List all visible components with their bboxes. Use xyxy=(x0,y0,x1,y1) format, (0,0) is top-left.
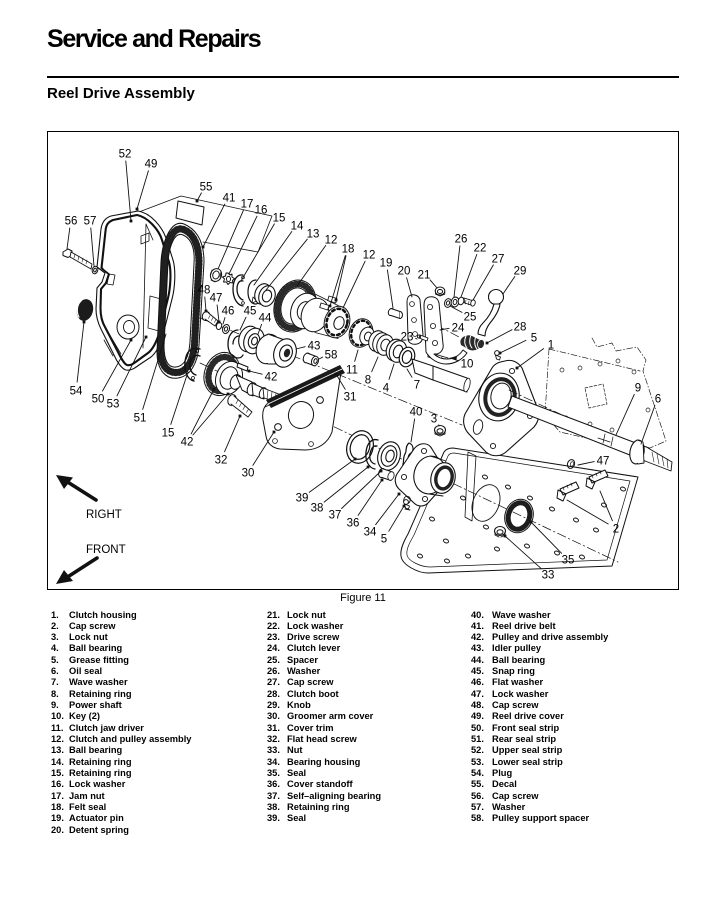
svg-text:54: 54 xyxy=(70,386,83,398)
svg-text:22: 22 xyxy=(474,243,487,255)
svg-text:39: 39 xyxy=(296,493,309,505)
svg-text:10: 10 xyxy=(461,359,474,371)
svg-text:38: 38 xyxy=(311,503,324,515)
svg-text:43: 43 xyxy=(308,341,321,353)
svg-text:8: 8 xyxy=(365,375,371,387)
svg-text:16: 16 xyxy=(255,205,268,217)
svg-text:28: 28 xyxy=(514,322,527,334)
svg-text:30: 30 xyxy=(242,468,255,480)
svg-text:53: 53 xyxy=(107,399,120,411)
svg-text:44: 44 xyxy=(259,313,272,325)
svg-text:6: 6 xyxy=(655,394,661,406)
svg-text:47: 47 xyxy=(597,456,610,468)
svg-text:21: 21 xyxy=(418,270,431,282)
svg-text:19: 19 xyxy=(380,258,393,270)
svg-text:57: 57 xyxy=(84,216,97,228)
svg-text:34: 34 xyxy=(364,527,377,539)
svg-text:13: 13 xyxy=(307,229,320,241)
svg-text:11: 11 xyxy=(346,365,358,377)
svg-text:24: 24 xyxy=(452,323,465,335)
svg-text:29: 29 xyxy=(514,266,527,278)
svg-text:15: 15 xyxy=(162,428,175,440)
svg-text:12: 12 xyxy=(325,235,338,247)
svg-text:20: 20 xyxy=(398,266,411,278)
svg-text:50: 50 xyxy=(92,394,105,406)
svg-text:41: 41 xyxy=(223,193,236,205)
svg-text:46: 46 xyxy=(222,306,235,318)
svg-text:40: 40 xyxy=(410,407,423,419)
svg-text:58: 58 xyxy=(325,350,338,362)
svg-text:5: 5 xyxy=(531,333,537,345)
svg-text:42: 42 xyxy=(265,372,278,384)
svg-text:12: 12 xyxy=(363,250,376,262)
svg-text:42: 42 xyxy=(181,437,194,449)
svg-text:3: 3 xyxy=(431,414,437,426)
svg-text:55: 55 xyxy=(200,182,213,194)
svg-text:33: 33 xyxy=(542,570,555,582)
svg-text:23: 23 xyxy=(401,332,414,344)
svg-text:45: 45 xyxy=(244,306,257,318)
svg-text:1: 1 xyxy=(548,340,554,352)
svg-text:31: 31 xyxy=(344,392,357,404)
svg-text:48: 48 xyxy=(198,285,211,297)
svg-text:47: 47 xyxy=(210,293,223,305)
svg-text:26: 26 xyxy=(455,234,468,246)
svg-text:36: 36 xyxy=(347,518,360,530)
svg-text:51: 51 xyxy=(134,413,147,425)
svg-text:15: 15 xyxy=(273,213,286,225)
svg-text:17: 17 xyxy=(241,199,254,211)
svg-text:56: 56 xyxy=(65,216,78,228)
svg-text:49: 49 xyxy=(145,159,158,171)
svg-text:14: 14 xyxy=(291,221,304,233)
svg-text:18: 18 xyxy=(342,244,355,256)
svg-text:4: 4 xyxy=(383,383,390,395)
svg-text:37: 37 xyxy=(329,510,342,522)
svg-text:27: 27 xyxy=(492,254,505,266)
svg-text:9: 9 xyxy=(635,383,641,395)
svg-text:52: 52 xyxy=(119,149,132,161)
svg-text:35: 35 xyxy=(562,555,575,567)
svg-text:25: 25 xyxy=(464,312,477,324)
svg-text:5: 5 xyxy=(381,534,387,546)
svg-text:FRONT: FRONT xyxy=(86,544,126,556)
svg-text:RIGHT: RIGHT xyxy=(86,509,122,521)
svg-text:7: 7 xyxy=(414,380,420,392)
svg-text:32: 32 xyxy=(215,455,228,467)
svg-text:2: 2 xyxy=(613,524,619,536)
